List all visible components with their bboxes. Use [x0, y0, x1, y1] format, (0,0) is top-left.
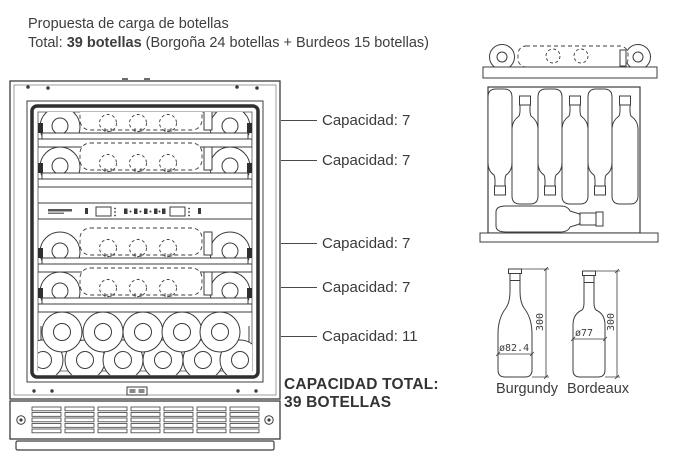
capacity-callout-shelf-3: Capacidad: 7 — [281, 232, 410, 254]
bordeaux-bottle-drawing: ø77 300 — [571, 269, 620, 379]
bordeaux-name-label: Bordeaux — [558, 381, 638, 397]
vent-grille — [10, 401, 280, 439]
shelf-board — [480, 233, 658, 242]
leader-line — [281, 243, 317, 244]
capacity-callout-shelf-4: Capacidad: 7 — [281, 276, 410, 298]
shelf-row-2 — [38, 143, 252, 187]
light-icon — [198, 208, 201, 214]
shelf-row-4 — [38, 268, 252, 312]
capacity-callout-bottom: Capacidad: 11 — [281, 325, 418, 347]
control-panel — [38, 203, 252, 219]
capacity-label: Capacidad: 7 — [322, 235, 410, 252]
capacity-label: Capacidad: 11 — [322, 328, 418, 345]
door-latch — [127, 387, 147, 395]
shelf-top-view-diagram — [478, 30, 660, 246]
burgundy-diameter-label: ø82.4 — [499, 343, 529, 354]
cooler-front-diagram — [8, 77, 284, 455]
leader-line — [281, 160, 317, 161]
capacity-label: Capacidad: 7 — [322, 112, 410, 129]
capacity-callout-shelf-1: Capacidad: 7 — [281, 109, 410, 131]
total-summary: Total: 39 botellas (Borgoña 24 botellas … — [28, 34, 429, 53]
bordeaux-height-label: 300 — [606, 313, 617, 331]
total-capacity-line1: CAPACIDAD TOTAL: — [284, 376, 439, 394]
capacity-label: Capacidad: 7 — [322, 152, 410, 169]
page-title: Propuesta de carga de botellas — [28, 15, 429, 34]
header: Propuesta de carga de botellas Total: 39… — [28, 15, 429, 53]
shelf-row-3 — [38, 228, 252, 272]
bottle-spec-diagram: ø82.4 300 ø77 300 — [475, 258, 680, 390]
button-dots-right — [188, 208, 190, 217]
total-capacity: CAPACIDAD TOTAL: 39 BOTELLAS — [284, 376, 439, 412]
page: Propuesta de carga de botellas Total: 39… — [0, 0, 680, 467]
shelf-plan-view — [480, 87, 658, 242]
capacity-callout-shelf-2: Capacidad: 7 — [281, 149, 410, 171]
bordeaux-diameter-label: ø77 — [575, 328, 593, 339]
leader-line — [281, 120, 317, 121]
plinth — [16, 441, 274, 450]
capacity-label: Capacidad: 7 — [322, 279, 410, 296]
temperature-display-lower — [170, 207, 185, 216]
total-summary-bold: 39 botellas — [67, 35, 142, 51]
leader-line — [281, 336, 317, 337]
leader-line — [281, 287, 317, 288]
power-icon — [85, 208, 88, 214]
burgundy-bottle-drawing: ø82.4 300 — [496, 267, 549, 379]
burgundy-height-label: 300 — [535, 313, 546, 331]
button-dots-left — [114, 208, 116, 217]
total-capacity-line2: 39 BOTELLAS — [284, 394, 439, 412]
top-row-bottles — [42, 312, 240, 352]
shelf-side-view — [483, 45, 657, 79]
temperature-display-upper — [96, 207, 111, 216]
burgundy-name-label: Burgundy — [487, 381, 567, 397]
